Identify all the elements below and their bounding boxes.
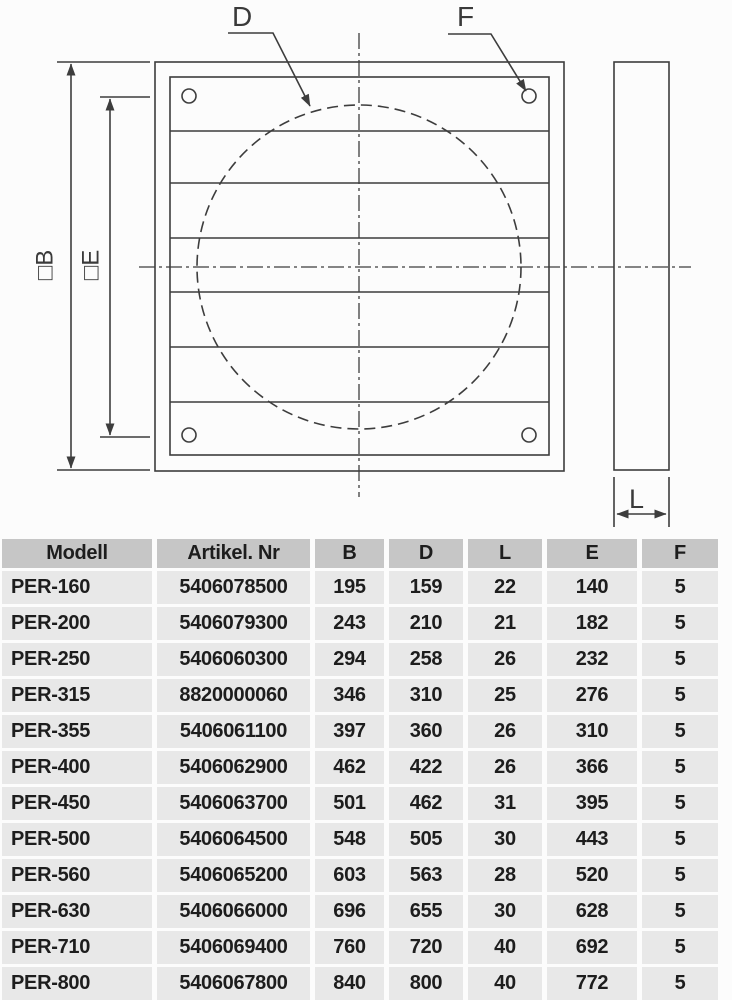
table-cell-D: 505 <box>389 823 463 856</box>
grille-technical-drawing <box>0 0 732 539</box>
leader-line-D <box>228 33 310 106</box>
table-cell-F: 5 <box>642 715 718 748</box>
table-cell-artikel: 5406067800 <box>157 967 310 1000</box>
column-header-L: L <box>468 539 542 568</box>
table-cell-model: PER-450 <box>2 787 152 820</box>
label-square-B: □B <box>33 250 57 281</box>
table-cell-E: 366 <box>547 751 637 784</box>
table-cell-artikel: 5406065200 <box>157 859 310 892</box>
table-cell-model: PER-710 <box>2 931 152 964</box>
table-cell-artikel: 5406078500 <box>157 571 310 604</box>
table-cell-artikel: 5406063700 <box>157 787 310 820</box>
table-cell-model: PER-160 <box>2 571 152 604</box>
label-F: F <box>457 3 474 31</box>
table-cell-B: 603 <box>315 859 384 892</box>
table-cell-model: PER-400 <box>2 751 152 784</box>
table-cell-model: PER-560 <box>2 859 152 892</box>
table-cell-F: 5 <box>642 643 718 676</box>
table-cell-D: 563 <box>389 859 463 892</box>
table-cell-L: 26 <box>468 715 542 748</box>
table-cell-L: 40 <box>468 931 542 964</box>
table-cell-D: 310 <box>389 679 463 712</box>
table-cell-B: 840 <box>315 967 384 1000</box>
table-cell-E: 232 <box>547 643 637 676</box>
column-header-modell: Modell <box>2 539 152 568</box>
table-cell-artikel: 8820000060 <box>157 679 310 712</box>
table-cell-E: 520 <box>547 859 637 892</box>
label-D: D <box>232 3 252 31</box>
spec-table: Modell Artikel. Nr B D L E F PER-160 540… <box>2 539 718 1000</box>
table-cell-L: 25 <box>468 679 542 712</box>
table-cell-B: 243 <box>315 607 384 640</box>
table-cell-B: 696 <box>315 895 384 928</box>
table-cell-D: 422 <box>389 751 463 784</box>
table-cell-model: PER-200 <box>2 607 152 640</box>
table-cell-E: 443 <box>547 823 637 856</box>
table-cell-E: 182 <box>547 607 637 640</box>
table-cell-artikel: 5406062900 <box>157 751 310 784</box>
table-cell-F: 5 <box>642 751 718 784</box>
table-cell-F: 5 <box>642 967 718 1000</box>
table-cell-F: 5 <box>642 679 718 712</box>
table-cell-D: 360 <box>389 715 463 748</box>
table-cell-E: 140 <box>547 571 637 604</box>
table-cell-F: 5 <box>642 823 718 856</box>
table-cell-B: 760 <box>315 931 384 964</box>
table-cell-B: 294 <box>315 643 384 676</box>
table-cell-L: 40 <box>468 967 542 1000</box>
table-cell-D: 462 <box>389 787 463 820</box>
table-cell-F: 5 <box>642 895 718 928</box>
table-cell-model: PER-500 <box>2 823 152 856</box>
table-cell-L: 22 <box>468 571 542 604</box>
table-cell-L: 26 <box>468 643 542 676</box>
table-cell-F: 5 <box>642 931 718 964</box>
table-cell-L: 21 <box>468 607 542 640</box>
table-cell-E: 276 <box>547 679 637 712</box>
table-cell-model: PER-250 <box>2 643 152 676</box>
table-cell-L: 31 <box>468 787 542 820</box>
table-cell-L: 30 <box>468 823 542 856</box>
table-cell-F: 5 <box>642 787 718 820</box>
table-cell-B: 195 <box>315 571 384 604</box>
table-cell-B: 462 <box>315 751 384 784</box>
table-cell-B: 397 <box>315 715 384 748</box>
table-cell-B: 548 <box>315 823 384 856</box>
table-cell-E: 395 <box>547 787 637 820</box>
table-cell-artikel: 5406066000 <box>157 895 310 928</box>
table-cell-B: 346 <box>315 679 384 712</box>
table-cell-L: 30 <box>468 895 542 928</box>
table-cell-B: 501 <box>315 787 384 820</box>
column-header-E: E <box>547 539 637 568</box>
table-cell-D: 720 <box>389 931 463 964</box>
table-cell-model: PER-800 <box>2 967 152 1000</box>
table-cell-E: 772 <box>547 967 637 1000</box>
table-cell-artikel: 5406079300 <box>157 607 310 640</box>
table-cell-L: 26 <box>468 751 542 784</box>
table-cell-F: 5 <box>642 571 718 604</box>
table-cell-D: 258 <box>389 643 463 676</box>
table-cell-E: 628 <box>547 895 637 928</box>
label-L: L <box>629 486 644 513</box>
table-cell-D: 159 <box>389 571 463 604</box>
table-cell-model: PER-315 <box>2 679 152 712</box>
table-cell-D: 655 <box>389 895 463 928</box>
table-cell-E: 692 <box>547 931 637 964</box>
table-cell-artikel: 5406069400 <box>157 931 310 964</box>
table-cell-artikel: 5406061100 <box>157 715 310 748</box>
table-cell-L: 28 <box>468 859 542 892</box>
table-cell-F: 5 <box>642 607 718 640</box>
column-header-D: D <box>389 539 463 568</box>
side-view-profile <box>614 62 669 470</box>
table-cell-artikel: 5406064500 <box>157 823 310 856</box>
label-square-E: □E <box>79 250 103 281</box>
table-cell-D: 800 <box>389 967 463 1000</box>
table-cell-D: 210 <box>389 607 463 640</box>
column-header-B: B <box>315 539 384 568</box>
table-cell-E: 310 <box>547 715 637 748</box>
table-cell-model: PER-630 <box>2 895 152 928</box>
table-cell-artikel: 5406060300 <box>157 643 310 676</box>
table-cell-F: 5 <box>642 859 718 892</box>
column-header-artikel: Artikel. Nr <box>157 539 310 568</box>
table-cell-model: PER-355 <box>2 715 152 748</box>
column-header-F: F <box>642 539 718 568</box>
